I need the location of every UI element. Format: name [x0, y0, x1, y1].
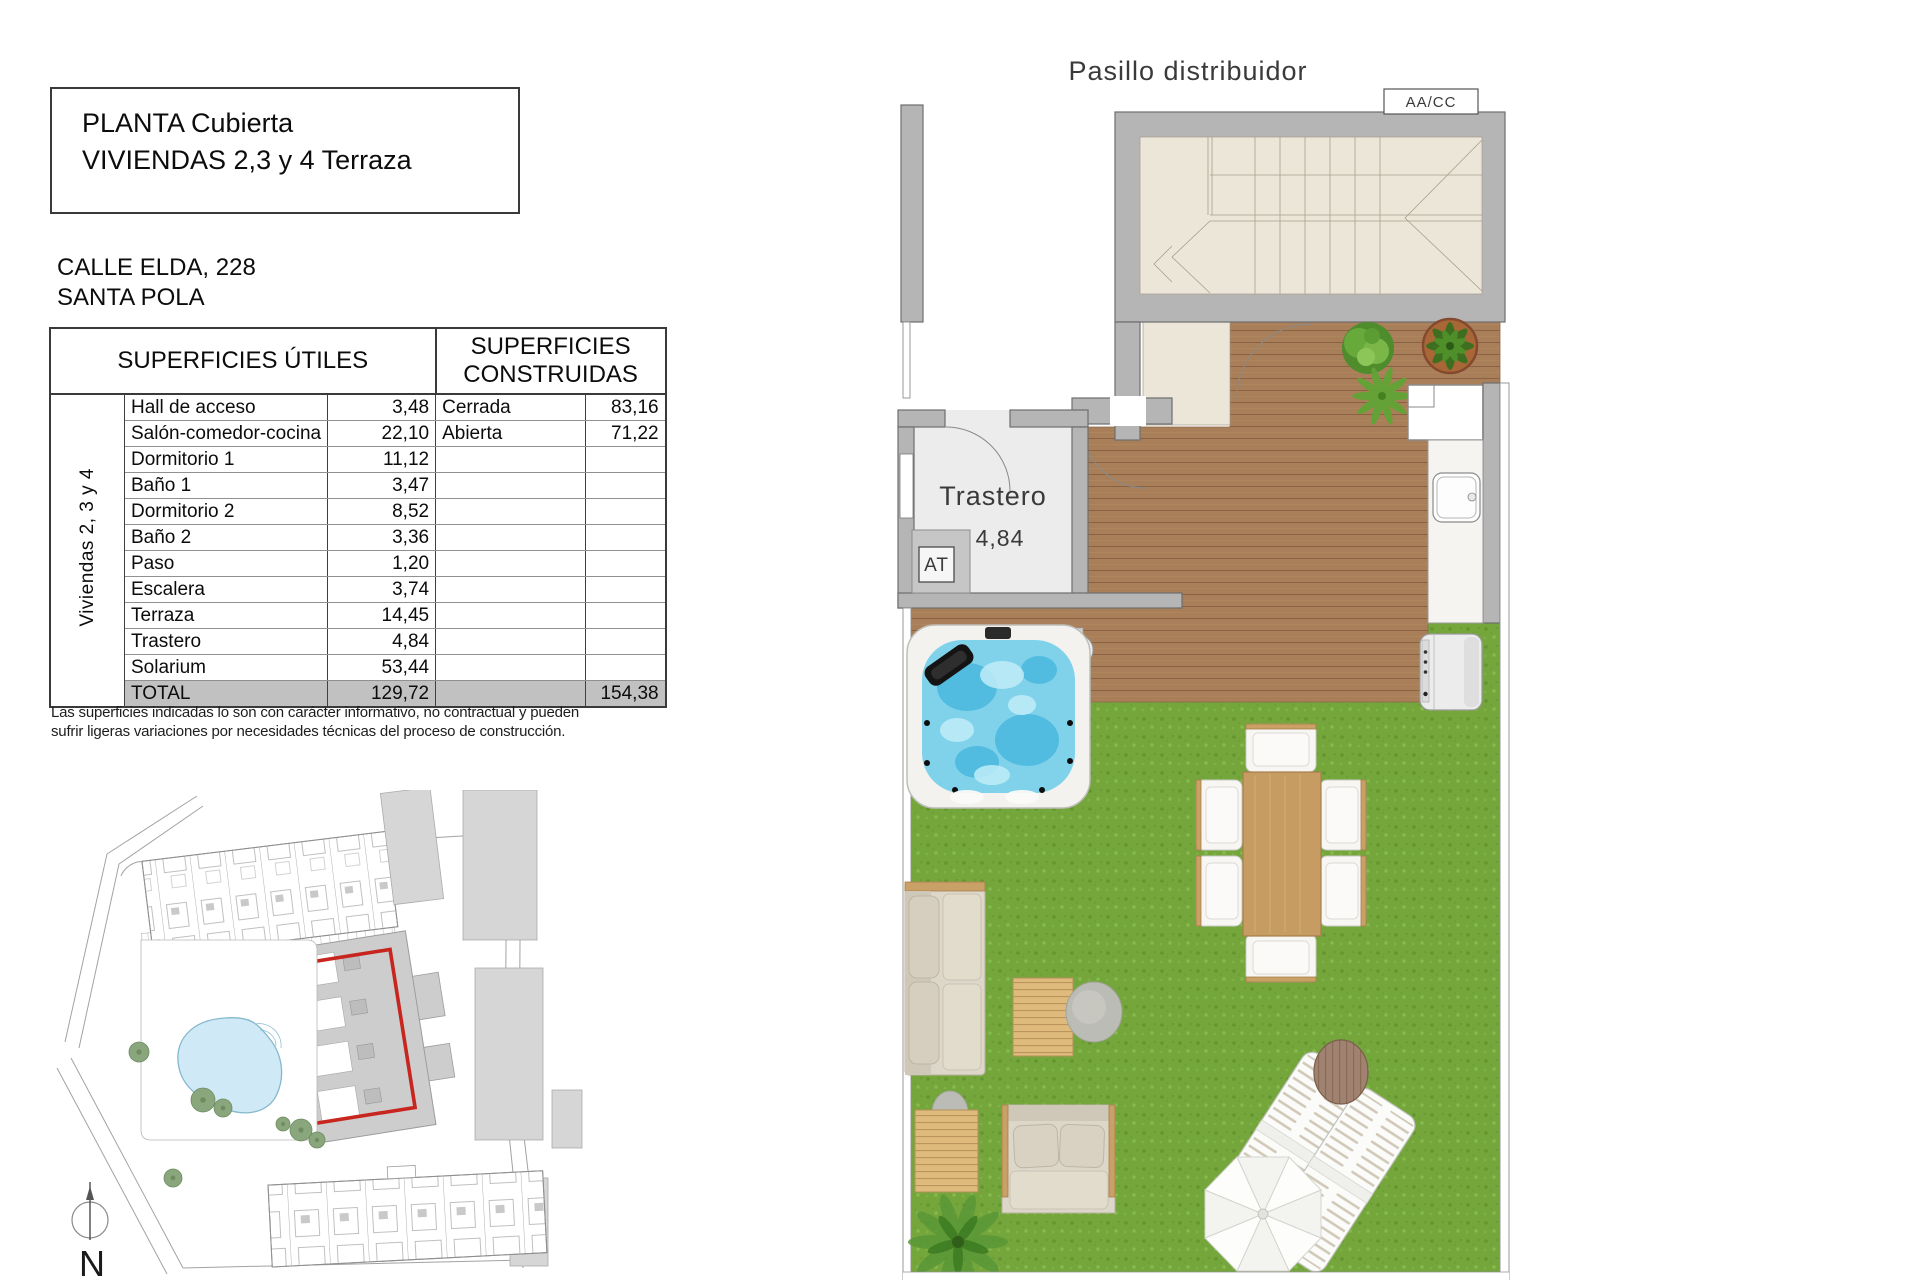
- storage-area-value: 4,84: [976, 525, 1025, 551]
- built-area: [586, 603, 666, 629]
- site-buildings-bottom: [267, 1159, 547, 1267]
- hvac-unit: AA/CC: [1384, 89, 1478, 114]
- table-row: Salón-comedor-cocina22,10Abierta71,22: [50, 421, 666, 447]
- plant-bush: [1342, 322, 1394, 374]
- plan-sheet: PLANTA Cubierta VIVIENDAS 2,3 y 4 Terraz…: [0, 0, 1920, 1280]
- header-built: SUPERFICIES CONSTRUIDAS: [436, 328, 666, 394]
- sink: [1433, 473, 1480, 522]
- table-row: Dormitorio 28,52: [50, 499, 666, 525]
- barbecue-grill: [1420, 634, 1482, 710]
- title-line-1: PLANTA Cubierta: [82, 105, 508, 142]
- table-row: Escalera3,74: [50, 577, 666, 603]
- room-area: 14,45: [328, 603, 436, 629]
- group-label: Viviendas 2, 3 y 4: [77, 468, 99, 627]
- built-name: [436, 551, 586, 577]
- plant-pot: [1423, 319, 1477, 373]
- built-name: [436, 629, 586, 655]
- room-area: 53,44: [328, 655, 436, 681]
- room-area: 8,52: [328, 499, 436, 525]
- bottom-margin: [903, 1272, 1509, 1280]
- room-name: Dormitorio 2: [125, 499, 328, 525]
- built-name: [436, 473, 586, 499]
- room-area: 11,12: [328, 447, 436, 473]
- built-area: [586, 655, 666, 681]
- floor-plan-drawing: AT Trastero 4,84: [870, 30, 1530, 1280]
- built-area: [586, 525, 666, 551]
- title-line-2: VIVIENDAS 2,3 y 4 Terraza: [82, 142, 508, 179]
- room-name: Baño 1: [125, 473, 328, 499]
- parasol: [1205, 1157, 1321, 1271]
- table-row: Paso1,20: [50, 551, 666, 577]
- table-row: Solarium53,44: [50, 655, 666, 681]
- built-name: [436, 499, 586, 525]
- room-area: 1,20: [328, 551, 436, 577]
- side-table: [915, 1110, 978, 1192]
- room-name: Salón-comedor-cocina: [125, 421, 328, 447]
- room-name: Terraza: [125, 603, 328, 629]
- table-row: Baño 23,36: [50, 525, 666, 551]
- built-area: 83,16: [586, 394, 666, 421]
- room-area: 3,36: [328, 525, 436, 551]
- site-plan: N: [55, 790, 615, 1280]
- table-row: Terraza14,45: [50, 603, 666, 629]
- hvac-label: AA/CC: [1406, 94, 1457, 111]
- room-name: Solarium: [125, 655, 328, 681]
- title-box: PLANTA Cubierta VIVIENDAS 2,3 y 4 Terraz…: [50, 87, 520, 214]
- built-name: [436, 525, 586, 551]
- header-useful: SUPERFICIES ÚTILES: [50, 328, 436, 394]
- corridor-label: Pasillo distribuidor: [1068, 56, 1307, 86]
- coffee-table: [1013, 978, 1073, 1056]
- spa-control-panel: [985, 627, 1011, 639]
- table-row: Dormitorio 111,12: [50, 447, 666, 473]
- loveseat: [1002, 1105, 1115, 1213]
- built-area: [586, 577, 666, 603]
- room-area: 4,84: [328, 629, 436, 655]
- party-wall-strip: [901, 105, 923, 322]
- built-name: [436, 577, 586, 603]
- room-area: 3,74: [328, 577, 436, 603]
- north-compass: N: [72, 1182, 108, 1280]
- built-area: 71,22: [586, 421, 666, 447]
- outdoor-counter: [1428, 440, 1483, 623]
- address: CALLE ELDA, 228 SANTA POLA: [57, 253, 256, 313]
- group-label-cell: Viviendas 2, 3 y 4: [50, 394, 125, 707]
- built-name: Cerrada: [436, 394, 586, 421]
- built-area: [586, 551, 666, 577]
- built-name: Abierta: [436, 421, 586, 447]
- thin-wall-upper: [903, 322, 910, 398]
- room-area: 3,47: [328, 473, 436, 499]
- room-area: 3,48: [328, 394, 436, 421]
- jacuzzi: [907, 625, 1090, 808]
- table-header-row: SUPERFICIES ÚTILES SUPERFICIES CONSTRUID…: [50, 328, 666, 394]
- room-name: Trastero: [125, 629, 328, 655]
- thin-wall-right: [1500, 383, 1509, 1280]
- room-name: Escalera: [125, 577, 328, 603]
- built-area: [586, 629, 666, 655]
- room-name: Baño 2: [125, 525, 328, 551]
- room-name: Paso: [125, 551, 328, 577]
- antenna-label: AT: [924, 555, 949, 576]
- wall-niche: [900, 454, 913, 518]
- address-line-1: CALLE ELDA, 228: [57, 253, 256, 283]
- built-area: [586, 499, 666, 525]
- round-platform: [1314, 1040, 1368, 1104]
- north-label: N: [79, 1243, 105, 1280]
- table-row: Trastero4,84: [50, 629, 666, 655]
- built-area: [586, 473, 666, 499]
- room-name: Hall de acceso: [125, 394, 328, 421]
- built-name: [436, 655, 586, 681]
- room-name: Dormitorio 1: [125, 447, 328, 473]
- built-name: [436, 447, 586, 473]
- built-area: [586, 447, 666, 473]
- room-area: 22,10: [328, 421, 436, 447]
- faucet-icon: [1468, 493, 1476, 501]
- storage-room-label: Trastero: [939, 481, 1047, 511]
- surfaces-table-wrap: SUPERFICIES ÚTILES SUPERFICIES CONSTRUID…: [49, 327, 667, 708]
- built-name: [436, 603, 586, 629]
- disclaimer-note: Las superficies indicadas lo son con car…: [51, 703, 599, 741]
- surfaces-table: SUPERFICIES ÚTILES SUPERFICIES CONSTRUID…: [49, 327, 667, 708]
- table-row: Viviendas 2, 3 y 4Hall de acceso3,48Cerr…: [50, 394, 666, 421]
- table-row: Baño 13,47: [50, 473, 666, 499]
- address-line-2: SANTA POLA: [57, 283, 256, 313]
- sofa: [905, 882, 985, 1075]
